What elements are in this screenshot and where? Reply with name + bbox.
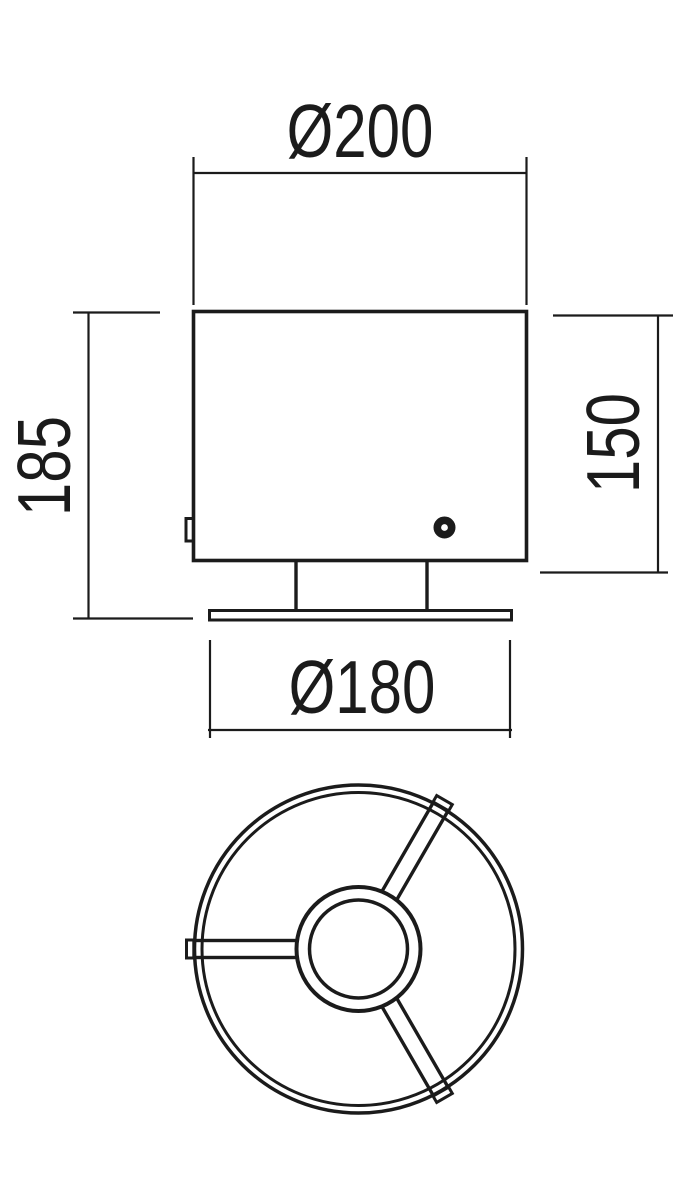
- front-view: [186, 312, 527, 621]
- spoke-upper-right: [382, 802, 448, 900]
- power-knob: [437, 520, 451, 534]
- hub-inner-circle: [310, 900, 408, 998]
- dimension-label-base-diameter: Ø180: [242, 649, 482, 725]
- shade-outline: [194, 312, 527, 561]
- dimension-label-total-height: 185: [6, 346, 82, 586]
- spoke-left: [194, 941, 298, 958]
- dimension-label-shade-diameter: Ø200: [240, 93, 480, 169]
- dim-shade-diameter-lines: [193, 157, 527, 305]
- lamp-dimension-drawing: [0, 0, 700, 1200]
- dimension-label-shade-height: 150: [575, 323, 651, 563]
- technical-drawing-page: Ø200 185 150 Ø180: [0, 0, 700, 1200]
- spoke-lower-right: [382, 998, 448, 1096]
- plan-view: [187, 785, 523, 1113]
- base-plate: [210, 611, 512, 621]
- dim-total-height-lines: [73, 312, 193, 619]
